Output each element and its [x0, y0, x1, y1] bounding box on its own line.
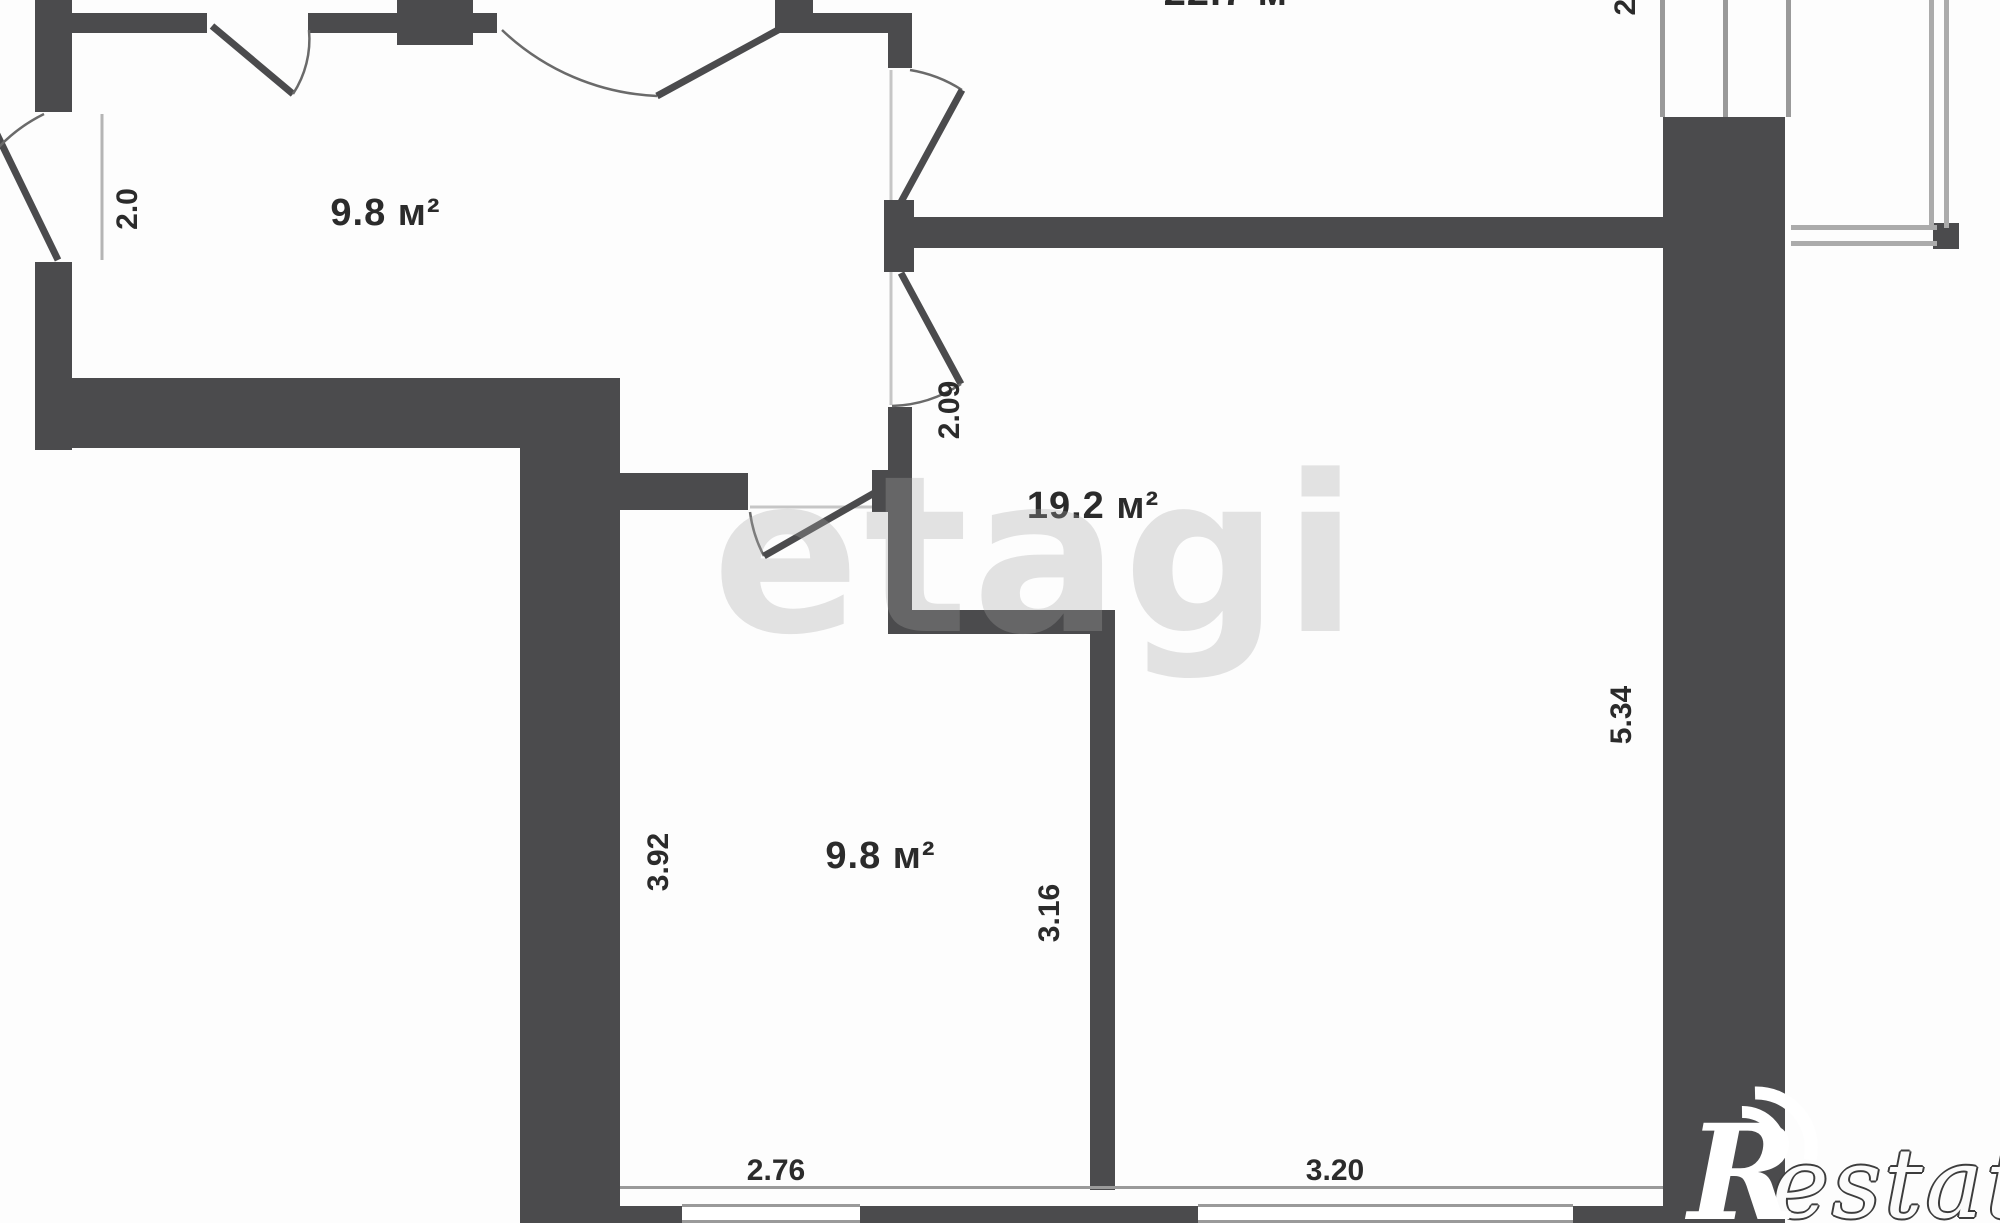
floor-plan: 9.8 м² 22.7 м² 19.2 м² 9.8 м² 2.0 2.09 3… [0, 0, 2000, 1223]
dim-right-room-depth: 5.34 [1605, 665, 1639, 765]
dim-bottom-room-depth: 3.92 [642, 812, 676, 912]
dim-right-room-inner: 3.16 [1033, 863, 1067, 963]
window2-leaf [657, 30, 778, 96]
left-door-leaf [0, 120, 58, 260]
upper-door-arc [910, 70, 962, 90]
room-label-top-left: 9.8 м² [298, 192, 473, 235]
dim-bottom-room-width: 2.76 [726, 1154, 826, 1188]
upper-door-leaf [901, 90, 962, 202]
dim-balcony-partial: 2. [1609, 0, 1643, 33]
room-label-top-right-clipped: 22.7 м² [1138, 0, 1328, 15]
restate-logo-text: estate [1772, 1128, 2000, 1223]
room-label-bottom: 9.8 м² [793, 835, 968, 878]
window2-arc [502, 30, 657, 96]
window1-leaf [212, 26, 293, 94]
dim-left-door: 2.0 [111, 169, 145, 249]
dim-right-room-width: 3.20 [1285, 1154, 1385, 1188]
restate-logo-initial: R [1688, 1096, 1798, 1223]
left-door-arc [0, 114, 44, 225]
window1-arc [293, 30, 309, 94]
etagi-watermark: etagi [712, 448, 1362, 666]
